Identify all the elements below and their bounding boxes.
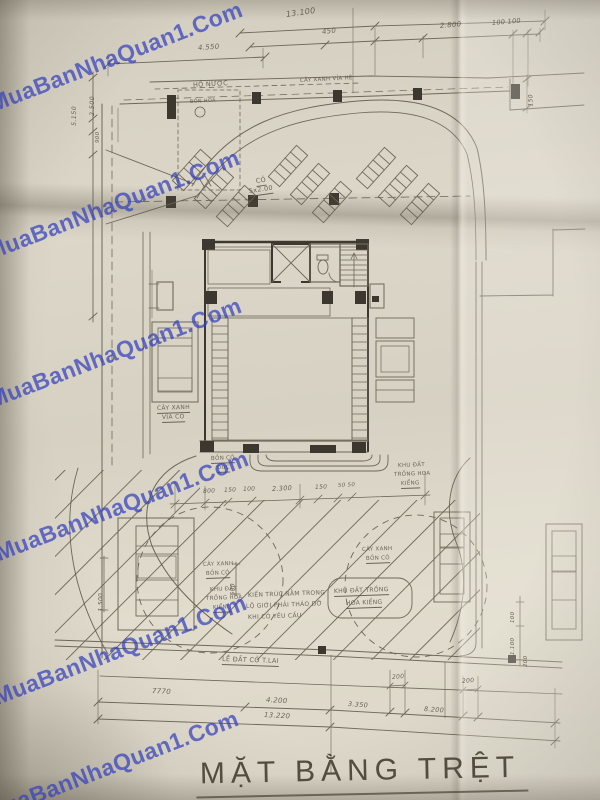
fence-post — [167, 95, 176, 119]
wc-room — [310, 244, 340, 282]
staircase — [340, 244, 368, 287]
flower-symbol — [195, 107, 205, 117]
column — [248, 195, 258, 207]
top-dimensions — [104, 8, 549, 93]
side-steps — [212, 318, 368, 440]
building-core — [149, 239, 414, 471]
ramp-zone — [208, 250, 270, 284]
plan-title: MẶT BẰNG TRỆT — [196, 751, 529, 799]
left-planter — [152, 322, 198, 402]
floor-plan-drawing — [0, 0, 600, 800]
fence-post — [413, 88, 422, 100]
left-pier — [149, 270, 173, 318]
elevator — [272, 244, 310, 282]
scanned-plan-photo: 13.1004502.800100 1004.5505.1502.5009001… — [0, 0, 600, 800]
fence-post — [252, 92, 261, 104]
fence-post — [511, 84, 520, 99]
top-right-boundary — [480, 73, 585, 296]
right-planters — [370, 284, 414, 402]
parking-stalls — [172, 145, 439, 226]
tiled-hall — [228, 318, 352, 440]
column — [166, 196, 176, 208]
planter-box-edge — [546, 524, 582, 640]
left-dimensions — [89, 72, 118, 322]
fence-post — [333, 90, 342, 102]
setback-hatch — [55, 470, 480, 660]
entrance-steps — [250, 455, 388, 471]
front-fence — [120, 76, 520, 190]
porch-steps-zone — [208, 288, 330, 316]
lower-yard — [55, 470, 582, 694]
